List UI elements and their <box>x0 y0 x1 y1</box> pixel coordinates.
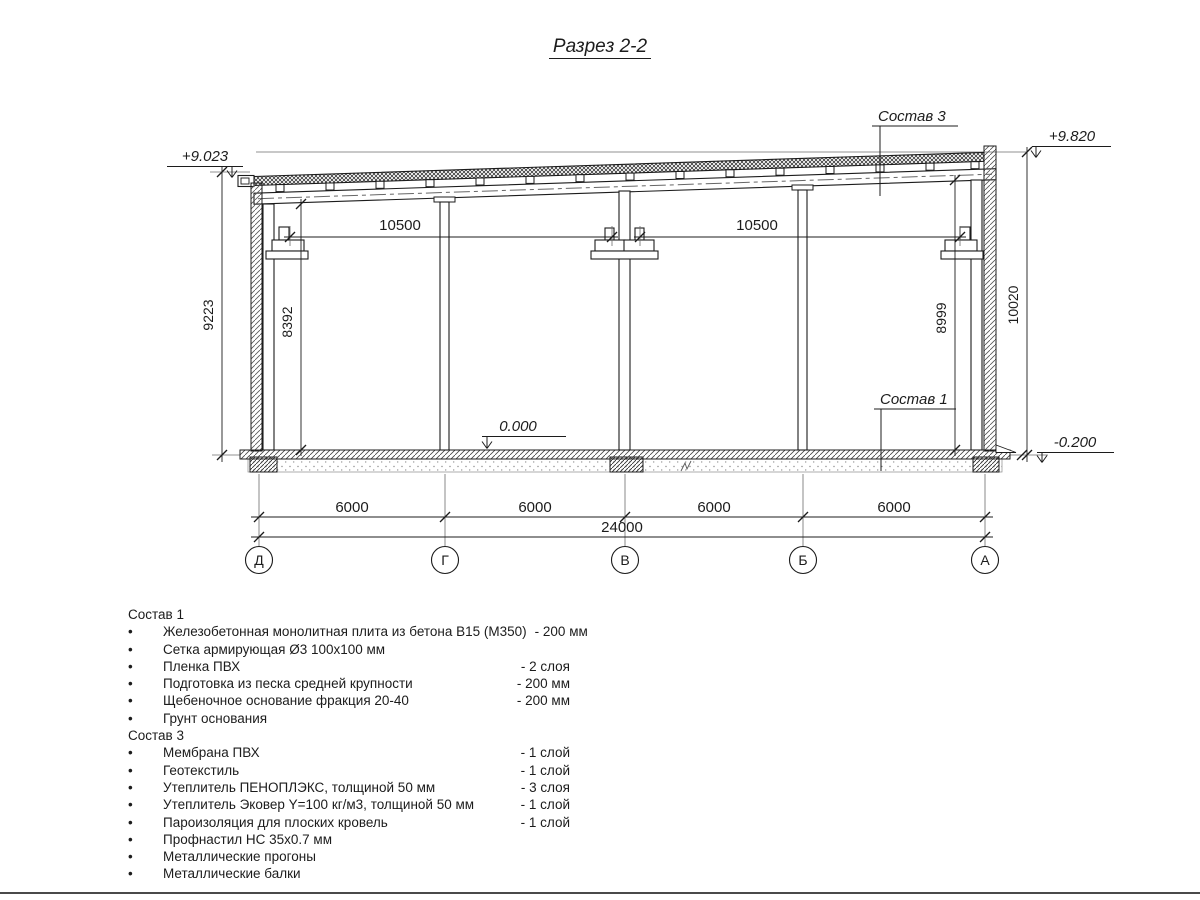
elevation-top-left: +9.023 <box>167 148 243 178</box>
sostav1-title: Состав 1 <box>128 606 570 623</box>
bullet-icon: • <box>128 831 163 848</box>
item-value <box>562 831 570 848</box>
list-item: • Щебеночное основание фракция 20-40 - 2… <box>128 692 570 709</box>
bullet-icon: • <box>128 641 163 658</box>
dim-total: 24000 <box>601 519 643 536</box>
list-item: • Железобетонная монолитная плита из бет… <box>128 623 570 640</box>
column-axis-g-cap <box>434 197 455 202</box>
axis-label-b: Б <box>798 552 807 568</box>
left-wall-panel <box>251 183 262 451</box>
callout-floor-label: Состав 1 <box>880 391 948 408</box>
elevation-top-right: +9.820 <box>1031 128 1111 158</box>
roof-edge-insert <box>241 178 249 184</box>
dimension-right-outer: 10020 <box>1005 147 1032 462</box>
composition-legend: Состав 1 • Железобетонная монолитная пли… <box>128 606 570 883</box>
item-value: - 1 слой <box>513 796 570 813</box>
item-value: - 200 мм <box>527 623 588 640</box>
column-axis-g <box>440 202 449 450</box>
item-value: - 2 слоя <box>513 658 570 675</box>
bullet-icon: • <box>128 675 163 692</box>
list-item: • Пароизоляция для плоских кровель - 1 с… <box>128 814 570 831</box>
sostav3-title: Состав 3 <box>128 727 570 744</box>
list-item: • Металлические балки <box>128 865 570 882</box>
list-item: • Мембрана ПВХ - 1 слой <box>128 744 570 761</box>
list-item: • Утеплитель ПЕНОПЛЭКС, толщиной 50 мм -… <box>128 779 570 796</box>
column-axis-v <box>619 191 630 450</box>
item-text: Подготовка из песка средней крупности <box>163 675 413 692</box>
axis-label-v: В <box>620 552 629 568</box>
bullet-icon: • <box>128 623 163 640</box>
item-text: Металлические балки <box>163 865 301 882</box>
item-value: - 1 слой <box>513 762 570 779</box>
apron-right <box>996 445 1016 453</box>
floor-slab <box>240 450 1010 459</box>
elevation-top-right-value: +9.820 <box>1049 128 1096 145</box>
item-value <box>562 641 570 658</box>
elevation-top-left-value: +9.023 <box>182 148 229 165</box>
list-item: • Профнастил НС 35х0.7 мм <box>128 831 570 848</box>
bullet-icon: • <box>128 762 163 779</box>
item-text: Грунт основания <box>163 710 267 727</box>
elevation-floor: 0.000 <box>482 418 566 449</box>
dim-bay-1: 6000 <box>335 499 368 516</box>
item-text: Мембрана ПВХ <box>163 744 260 761</box>
elevation-floor-value: 0.000 <box>499 418 537 435</box>
item-value <box>562 865 570 882</box>
bullet-icon: • <box>128 848 163 865</box>
elevation-ground-value: -0.200 <box>1054 434 1097 451</box>
item-value: - 200 мм <box>509 675 570 692</box>
dim-right-inner-value: 8999 <box>933 302 949 333</box>
item-text: Профнастил НС 35х0.7 мм <box>163 831 332 848</box>
dim-left-inner-value: 8392 <box>279 306 295 337</box>
list-item: • Утеплитель Эковер Y=100 кг/м3, толщино… <box>128 796 570 813</box>
list-item: • Металлические прогоны <box>128 848 570 865</box>
roof <box>238 152 996 204</box>
dim-left-outer-value: 9223 <box>200 299 216 330</box>
page-bottom-border <box>0 892 1200 894</box>
column-axis-b <box>798 190 807 450</box>
list-item: • Грунт основания <box>128 710 570 727</box>
list-item: • Геотекстиль - 1 слой <box>128 762 570 779</box>
callout-roof-label: Состав 3 <box>878 108 946 125</box>
dim-right-outer-value: 10020 <box>1005 285 1021 324</box>
bullet-icon: • <box>128 814 163 831</box>
elevation-ground: -0.200 <box>1017 434 1114 463</box>
item-value <box>562 710 570 727</box>
item-value: - 200 мм <box>509 692 570 709</box>
axis-label-a: А <box>980 552 990 568</box>
axis-markers: Д Г В Б А <box>246 547 999 574</box>
bullet-icon: • <box>128 710 163 727</box>
bullet-icon: • <box>128 865 163 882</box>
bullet-icon: • <box>128 779 163 796</box>
item-text: Геотекстиль <box>163 762 239 779</box>
dim-span-left-value: 10500 <box>379 217 421 234</box>
bullet-icon: • <box>128 692 163 709</box>
axis-label-d: Д <box>254 552 264 568</box>
axis-label-g: Г <box>441 552 449 568</box>
dim-bay-4: 6000 <box>877 499 910 516</box>
bullet-icon: • <box>128 744 163 761</box>
item-text: Утеплитель Эковер Y=100 кг/м3, толщиной … <box>163 796 474 813</box>
dimension-span-left: 10500 <box>284 217 618 246</box>
dim-bay-3: 6000 <box>697 499 730 516</box>
item-value: - 1 слой <box>513 744 570 761</box>
bullet-icon: • <box>128 658 163 675</box>
section-drawing: 10500 10500 9223 8392 8999 10020 +9.023 <box>0 0 1200 600</box>
bullet-icon: • <box>128 796 163 813</box>
item-text: Сетка армирующая Ø3 100х100 мм <box>163 641 385 658</box>
dimension-left-outer: 9223 <box>200 166 227 462</box>
dimension-right-inner: 8999 <box>933 175 960 456</box>
item-text: Пароизоляция для плоских кровель <box>163 814 388 831</box>
item-text: Утеплитель ПЕНОПЛЭКС, толщиной 50 мм <box>163 779 435 796</box>
item-text: Пленка ПВХ <box>163 658 240 675</box>
list-item: • Пленка ПВХ - 2 слоя <box>128 658 570 675</box>
item-value <box>562 848 570 865</box>
item-text: Железобетонная монолитная плита из бетон… <box>163 623 527 640</box>
column-axis-a <box>971 180 982 450</box>
column-axis-b-cap <box>792 185 813 190</box>
dim-bay-2: 6000 <box>518 499 551 516</box>
list-item: • Сетка армирующая Ø3 100х100 мм <box>128 641 570 658</box>
item-value: - 1 слой <box>513 814 570 831</box>
item-text: Металлические прогоны <box>163 848 316 865</box>
bottom-dimensions: 6000 6000 6000 6000 24000 <box>251 474 993 546</box>
right-wall-panel <box>984 146 996 451</box>
item-text: Щебеночное основание фракция 20-40 <box>163 692 409 709</box>
list-item: • Подготовка из песка средней крупности … <box>128 675 570 692</box>
item-value: - 3 слоя <box>513 779 570 796</box>
dim-span-right-value: 10500 <box>736 217 778 234</box>
